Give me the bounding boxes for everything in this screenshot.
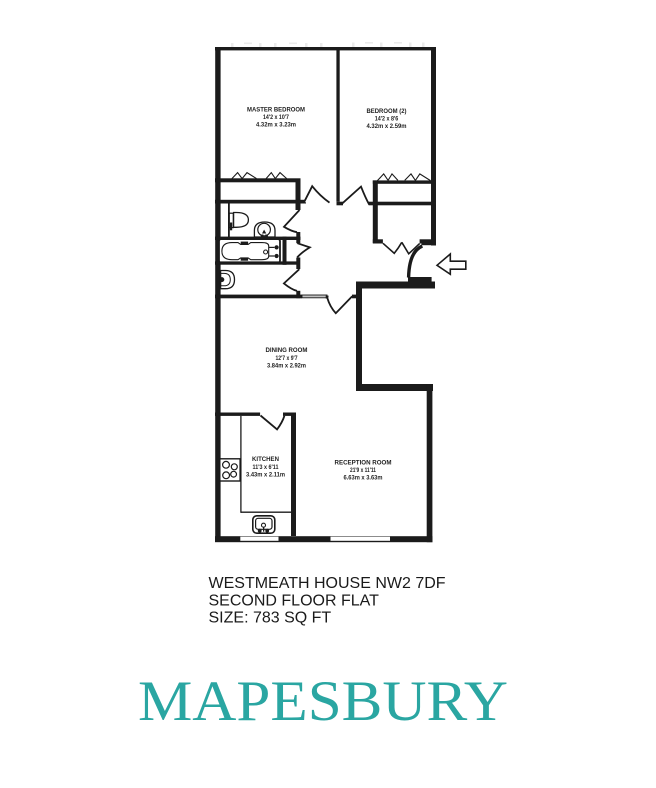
svg-text:MASTER BEDROOM: MASTER BEDROOM <box>247 106 305 113</box>
svg-text:3.84m x 2.92m: 3.84m x 2.92m <box>267 362 307 369</box>
svg-text:14'2 x 8'6: 14'2 x 8'6 <box>375 116 399 123</box>
svg-text:BEDROOM (2): BEDROOM (2) <box>367 108 407 115</box>
svg-text:11'3 x 6'11: 11'3 x 6'11 <box>253 464 280 471</box>
svg-text:4.32m x 3.23m: 4.32m x 3.23m <box>256 121 297 128</box>
svg-text:MAPESBURY: MAPESBURY <box>138 670 508 733</box>
svg-text:SIZE: 783 SQ FT: SIZE: 783 SQ FT <box>209 610 332 627</box>
svg-text:WESTMEATH HOUSE NW2 7DF: WESTMEATH HOUSE NW2 7DF <box>209 575 446 592</box>
svg-text:4.32m x 2.59m: 4.32m x 2.59m <box>367 123 408 130</box>
svg-text:DINING ROOM: DINING ROOM <box>266 347 308 354</box>
svg-text:RECEPTION ROOM: RECEPTION ROOM <box>335 460 392 467</box>
svg-text:KITCHEN: KITCHEN <box>252 456 279 463</box>
svg-text:6.63m x 3.63m: 6.63m x 3.63m <box>344 475 384 482</box>
svg-text:12'7 x 9'7: 12'7 x 9'7 <box>276 355 298 362</box>
svg-text:SECOND FLOOR FLAT: SECOND FLOOR FLAT <box>209 592 380 609</box>
svg-text:3.43m x 2.11m: 3.43m x 2.11m <box>246 471 286 478</box>
svg-text:14'2 x 10'7: 14'2 x 10'7 <box>263 114 290 121</box>
svg-text:21'9 x 11'11: 21'9 x 11'11 <box>350 467 376 474</box>
